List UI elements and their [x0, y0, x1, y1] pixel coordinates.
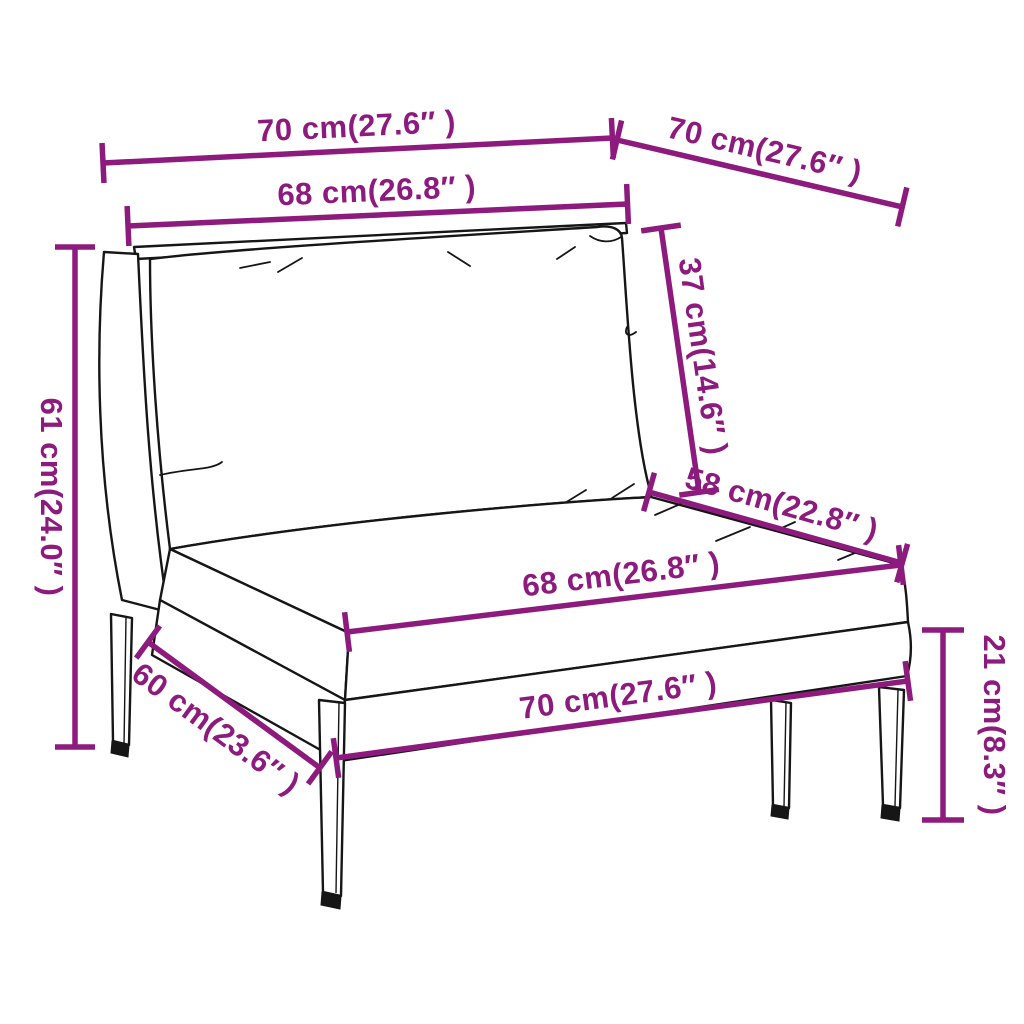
dimension-label: 61 cm(24.0″ )	[34, 398, 69, 597]
leg-front-left	[319, 700, 345, 909]
dimension-top-depth: 70 cm(27.6″ )	[612, 99, 911, 226]
dimension-label: 21 cm(8.3″ )	[977, 634, 1012, 815]
dimension-diagram: 70 cm(27.6″ ) 70 cm(27.6″ ) 68 cm(26.8″ …	[0, 0, 1024, 1024]
dimension-base-height: 21 cm(8.3″ )	[922, 630, 1012, 820]
dimension-back-height: 37 cm(14.6″ )	[641, 222, 739, 495]
dimension-overall-height: 61 cm(24.0″ )	[34, 247, 95, 747]
dimension-label: 68 cm(26.8″ )	[277, 169, 477, 213]
leg-back-right	[771, 700, 791, 819]
leg-front-right	[879, 687, 904, 821]
sofa-illustration	[99, 223, 911, 909]
dimension-label: 70 cm(27.6″ )	[256, 104, 456, 149]
dimension-top-width: 70 cm(27.6″ )	[101, 96, 613, 183]
sofa-dimension-drawing: 70 cm(27.6″ ) 70 cm(27.6″ ) 68 cm(26.8″ …	[0, 0, 1024, 1024]
